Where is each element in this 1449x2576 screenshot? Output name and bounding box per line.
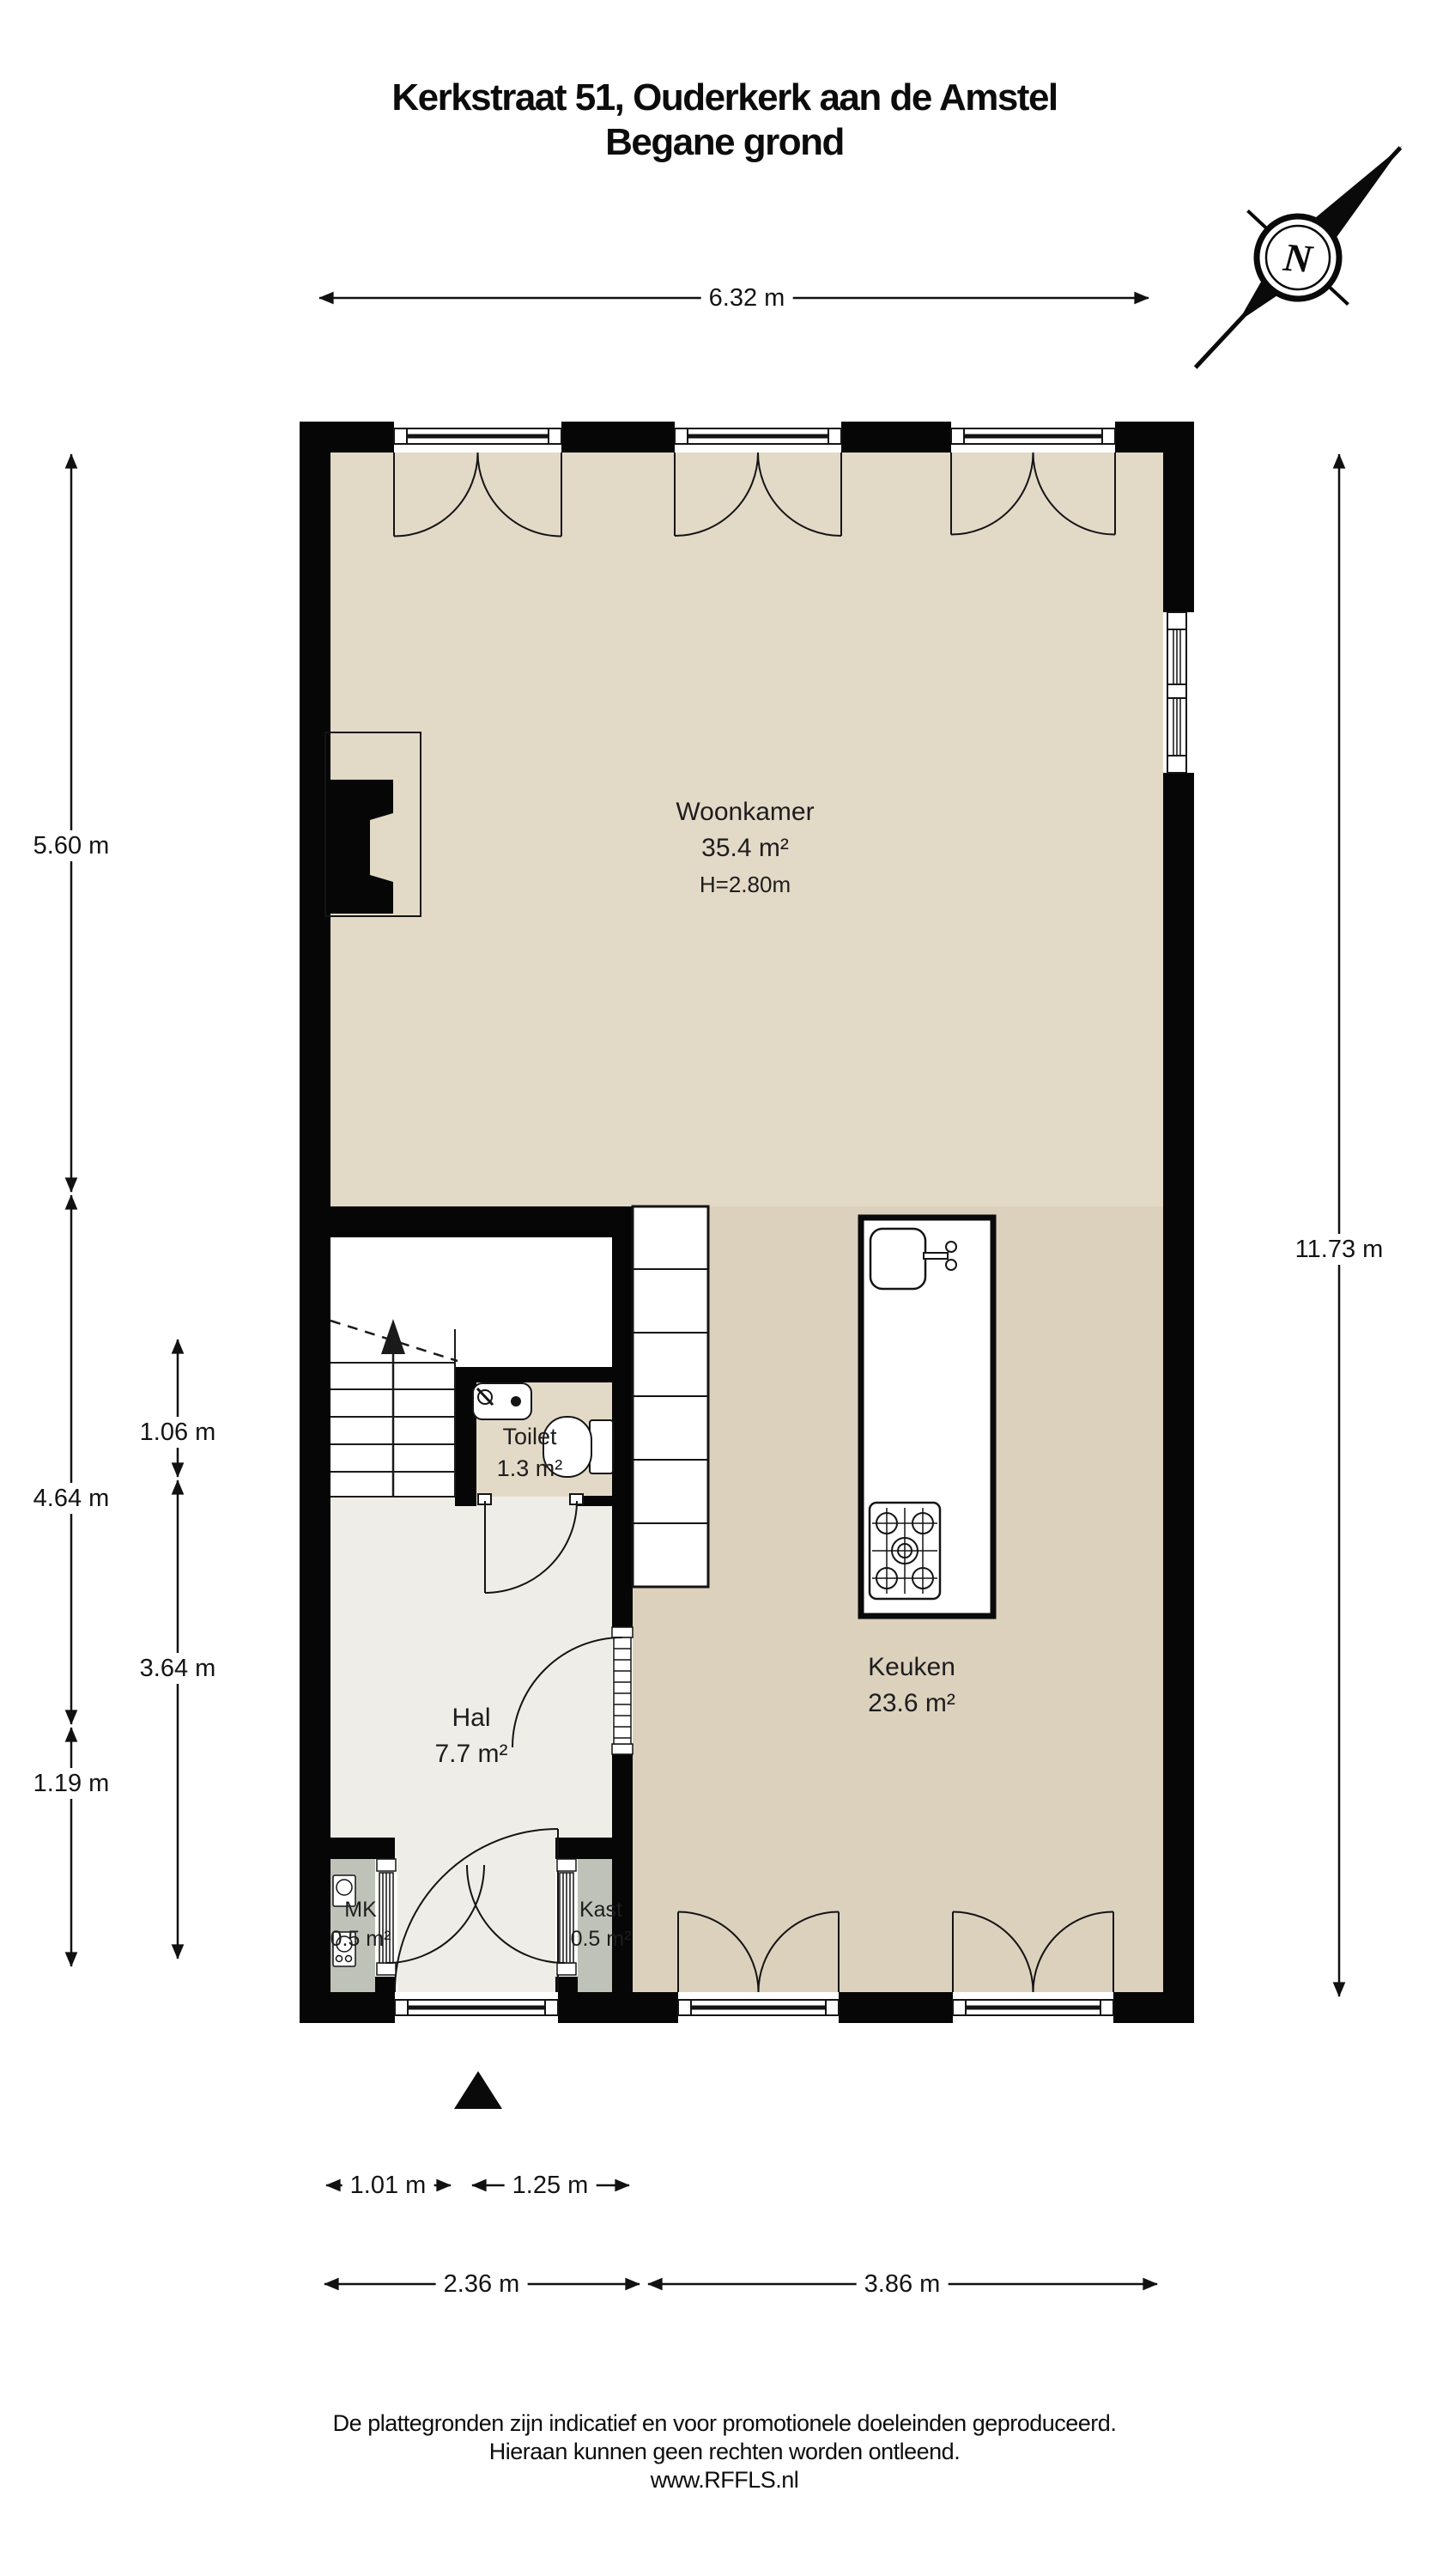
dim-bottom-door-left: 1.01 m — [343, 2170, 434, 2201]
room-label-mk: MK 0.5 m² — [330, 1895, 391, 1953]
dim-bottom-right: 3.86 m — [857, 2269, 949, 2300]
entrance-arrow — [454, 2071, 502, 2109]
dim-bottom-door-right: 1.25 m — [505, 2170, 597, 2201]
cabinet-column — [633, 1206, 708, 1587]
dim-right-total: 11.73 m — [1288, 1234, 1391, 1265]
room-label-woonkamer: Woonkamer 35.4 m² H=2.80m — [676, 794, 814, 902]
floor-stair-landing — [330, 1237, 612, 1367]
dim-left-upper: 5.60 m — [26, 830, 118, 861]
dim-inner-lower: 3.64 m — [132, 1653, 224, 1684]
kitchen-island — [861, 1218, 993, 1616]
disclaimer: De plattegronden zijn indicatief en voor… — [0, 2409, 1449, 2494]
room-label-toilet: Toilet 1.3 m² — [497, 1421, 563, 1485]
disclaimer-line1: De plattegronden zijn indicatief en voor… — [0, 2409, 1449, 2438]
compass-icon: N — [1145, 99, 1449, 414]
room-label-keuken: Keuken 23.6 m² — [868, 1649, 955, 1722]
compass-north-label: N — [1281, 235, 1315, 282]
disclaimer-website: www.RFFLS.nl — [0, 2466, 1449, 2494]
dim-inner-upper: 1.06 m — [132, 1417, 224, 1448]
room-label-hal: Hal 7.7 m² — [434, 1700, 507, 1772]
dim-left-lower: 1.19 m — [26, 1768, 118, 1799]
dim-bottom-left: 2.36 m — [436, 2269, 528, 2300]
floor-plan-drawing: N — [0, 0, 1449, 2576]
hand-basin-icon — [473, 1383, 531, 1419]
dim-left-middle: 4.64 m — [26, 1483, 118, 1514]
window-icon — [1163, 612, 1194, 773]
floor-plan-page: Kerkstraat 51, Ouderkerk aan de Amstel B… — [0, 0, 1449, 2576]
dim-width-total: 6.32 m — [701, 283, 793, 313]
room-label-kast: Kast 0.5 m² — [571, 1895, 632, 1953]
disclaimer-line2: Hieraan kunnen geen rechten worden ontle… — [0, 2438, 1449, 2466]
